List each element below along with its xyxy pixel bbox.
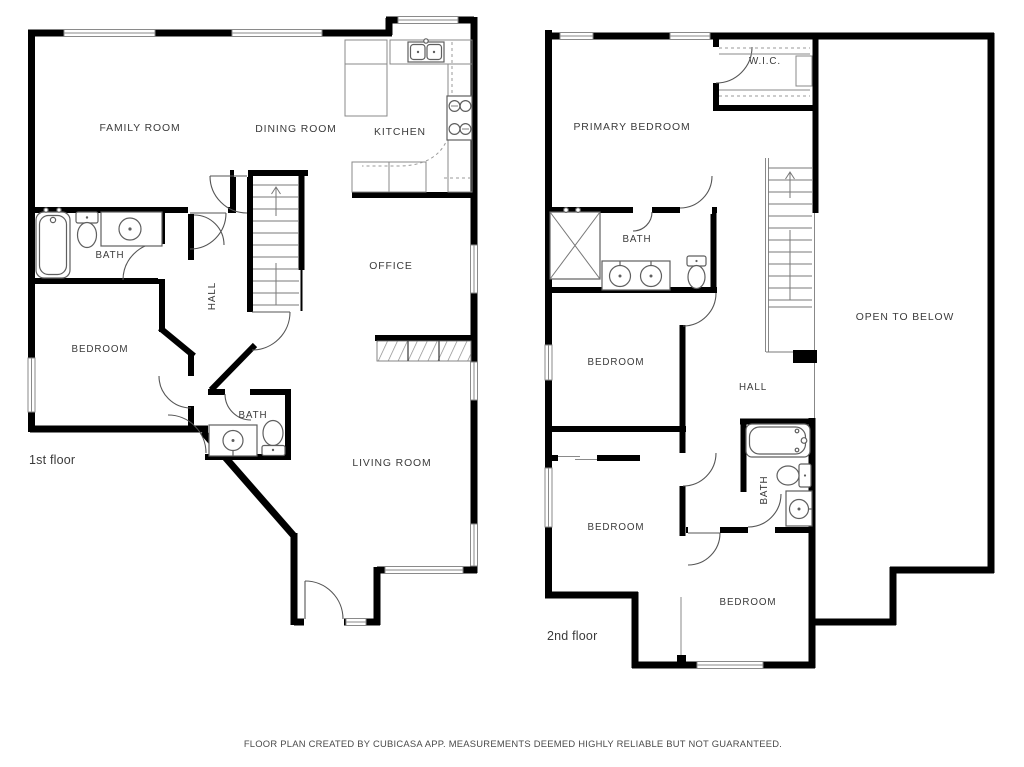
room-label-wic: W.I.C. xyxy=(749,56,781,67)
room-label-hall: HALL xyxy=(739,382,767,393)
floor-plan-image: FAMILY ROOM DINING ROOM KITCHEN BATH HAL… xyxy=(0,0,1024,767)
room-label-kitchen: KITCHEN xyxy=(374,127,426,138)
toilet-icon xyxy=(777,464,811,487)
room-label-open-to-below: OPEN TO BELOW xyxy=(856,312,955,323)
kitchen-sink-icon xyxy=(408,39,444,62)
room-label-primary-bedroom: PRIMARY BEDROOM xyxy=(573,122,690,133)
room-label-bath: BATH xyxy=(622,234,651,245)
room-label-bedroom-lower-right: BEDROOM xyxy=(720,597,777,608)
toilet-icon xyxy=(687,256,706,289)
powder-sink-icon xyxy=(209,425,257,456)
first-floor-plan: FAMILY ROOM DINING ROOM KITCHEN BATH HAL… xyxy=(28,17,478,627)
first-floor-walls xyxy=(28,17,477,625)
second-floor-plan: PRIMARY BEDROOM W.I.C. BATH BEDROOM HALL… xyxy=(545,30,994,669)
sink-icon xyxy=(786,491,812,526)
room-label-office: OFFICE xyxy=(369,261,413,272)
sink-icon xyxy=(101,212,162,246)
first-floor-stairs xyxy=(253,185,299,305)
stairs-up-arrow-icon xyxy=(272,187,281,216)
footer-disclaimer: FLOOR PLAN CREATED BY CUBICASA APP. MEAS… xyxy=(244,738,782,749)
room-label-bedroom-mid: BEDROOM xyxy=(588,357,645,368)
powder-toilet-icon xyxy=(262,421,285,456)
stairs-up-arrow-icon xyxy=(786,172,795,198)
bathtub-icon xyxy=(36,208,70,278)
room-label-family-room: FAMILY ROOM xyxy=(99,123,180,134)
room-label-dining-room: DINING ROOM xyxy=(255,124,336,135)
floor-label-1st: 1st floor xyxy=(29,453,75,467)
first-floor-windows xyxy=(28,17,478,626)
bathtub-icon xyxy=(746,424,810,457)
shower-icon xyxy=(550,208,600,279)
second-floor-labels: PRIMARY BEDROOM W.I.C. BATH BEDROOM HALL… xyxy=(547,56,954,643)
room-label-living-room: LIVING ROOM xyxy=(352,458,431,469)
floor-label-2nd: 2nd floor xyxy=(547,629,597,643)
room-label-bath: BATH xyxy=(95,250,124,261)
room-label-bath-small: BATH xyxy=(238,410,267,421)
second-floor-stairs xyxy=(766,158,815,418)
room-label-bath-right: BATH xyxy=(759,475,770,504)
fireplace-hatch xyxy=(377,341,471,361)
room-label-bedroom: BEDROOM xyxy=(72,344,129,355)
stove-icon xyxy=(447,96,472,140)
double-vanity-icon xyxy=(602,261,670,290)
room-label-hall: HALL xyxy=(207,282,218,310)
toilet-icon xyxy=(76,212,98,248)
room-label-bedroom-lower-left: BEDROOM xyxy=(588,522,645,533)
